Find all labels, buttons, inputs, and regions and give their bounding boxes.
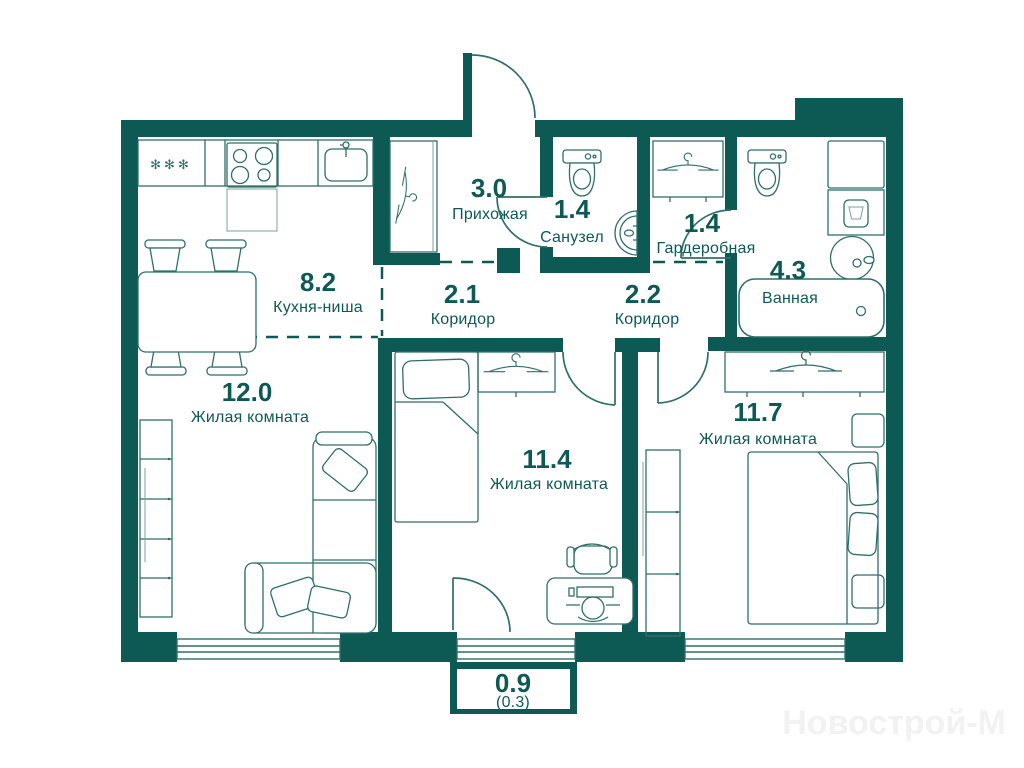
round-sink-icon	[831, 237, 875, 280]
svg-text:Жилая комната: Жилая комната	[699, 431, 817, 448]
svg-text:Жилая комната: Жилая комната	[191, 409, 309, 426]
svg-text:11.4: 11.4	[522, 444, 572, 474]
entrance-door-leaf	[463, 53, 472, 120]
kitchen-furniture: ✻✻✻	[138, 140, 373, 375]
window-living2-balcony	[457, 639, 575, 659]
dining-table	[138, 272, 256, 352]
label-wc: 1.4 Санузел	[540, 194, 604, 246]
hanger-icon	[396, 167, 422, 227]
wardrobe	[478, 352, 555, 397]
office-chair	[567, 544, 617, 574]
wardrobe-room-fixtures	[653, 141, 723, 202]
svg-text:2.2: 2.2	[625, 279, 661, 309]
living3-furniture	[643, 351, 884, 636]
wardrobe-rail	[653, 141, 723, 197]
label-kitchen: 8.2 Кухня-ниша	[273, 267, 363, 316]
svg-text:1.4: 1.4	[554, 194, 591, 224]
bed-pillow	[848, 462, 879, 506]
dining-set	[138, 240, 256, 375]
svg-text:Прихожая: Прихожая	[452, 206, 528, 223]
svg-text:Коридор: Коридор	[431, 311, 496, 328]
double-bed	[748, 452, 878, 624]
chair-icon	[206, 240, 246, 271]
svg-text:Ванная: Ванная	[762, 290, 818, 307]
bathroom-fixtures	[739, 141, 884, 337]
wardrobe	[725, 351, 884, 397]
living2-door	[563, 352, 615, 405]
corner-sofa	[245, 432, 376, 633]
svg-text:3.0: 3.0	[471, 173, 507, 203]
chair-icon	[145, 240, 185, 271]
label-living2: 11.4 Жилая комната	[490, 444, 608, 493]
toilet-icon	[563, 150, 601, 196]
svg-text:Коридор: Коридор	[615, 311, 680, 328]
svg-text:12.0: 12.0	[222, 377, 273, 407]
windows	[177, 639, 845, 659]
desk	[547, 578, 633, 624]
stove-icon	[227, 143, 277, 187]
hanger-icon	[770, 351, 842, 371]
svg-text:Санузел: Санузел	[540, 229, 604, 246]
nightstand	[852, 414, 884, 447]
hallway-closet	[390, 141, 437, 252]
washing-machine-icon	[828, 190, 884, 235]
label-corridor2: 2.2 Коридор	[615, 279, 680, 328]
label-hallway: 3.0 Прихожая	[452, 173, 528, 223]
living1-furniture	[140, 420, 376, 633]
hanger-icon	[484, 354, 549, 372]
window-living1	[177, 639, 340, 659]
svg-text:11.7: 11.7	[733, 397, 782, 427]
hanger-icon	[657, 153, 718, 170]
bathtub-icon	[739, 279, 884, 337]
svg-text:4.3: 4.3	[770, 255, 806, 285]
label-wardrobe: 1.4 Гардеробная	[657, 208, 756, 257]
nightstand	[852, 575, 884, 608]
balcony: 0.9 (0.3)	[450, 662, 577, 714]
shelf-unit	[643, 450, 680, 636]
svg-text:Жилая комната: Жилая комната	[490, 476, 608, 493]
cabinet-icon	[828, 141, 884, 188]
oven-icon	[227, 189, 277, 231]
label-living1: 12.0 Жилая комната	[191, 377, 309, 426]
watermark: Новострой-М	[782, 704, 1006, 742]
svg-text:Кухня-ниша: Кухня-ниша	[273, 299, 363, 316]
label-corridor1: 2.1 Коридор	[431, 279, 496, 328]
corner-sink-icon	[615, 211, 637, 255]
bed-pillow	[402, 359, 469, 399]
svg-text:1.4: 1.4	[684, 208, 721, 238]
room-labels: 8.2 Кухня-ниша 3.0 Прихожая 1.4 Санузел …	[191, 173, 818, 493]
svg-text:8.2: 8.2	[300, 267, 336, 297]
floor-plan-drawing: ✻✻✻	[0, 0, 1024, 768]
label-living3: 11.7 Жилая комната	[699, 397, 817, 448]
kitchen-sink-icon	[325, 142, 367, 181]
window-living3	[685, 639, 845, 659]
living3-door	[658, 352, 708, 403]
toilet-icon	[748, 150, 786, 196]
balcony-area-reduced: (0.3)	[496, 694, 530, 711]
single-bed	[395, 352, 478, 522]
shelf-unit	[140, 420, 172, 617]
floor-plan: ✻✻✻	[0, 0, 1024, 768]
svg-text:2.1: 2.1	[444, 279, 480, 309]
entrance-door-arc	[472, 55, 535, 118]
svg-text:Гардеробная: Гардеробная	[657, 240, 756, 257]
bed-pillow	[848, 512, 879, 556]
balcony-door	[453, 578, 510, 632]
fridge-icon: ✻✻✻	[150, 157, 192, 172]
